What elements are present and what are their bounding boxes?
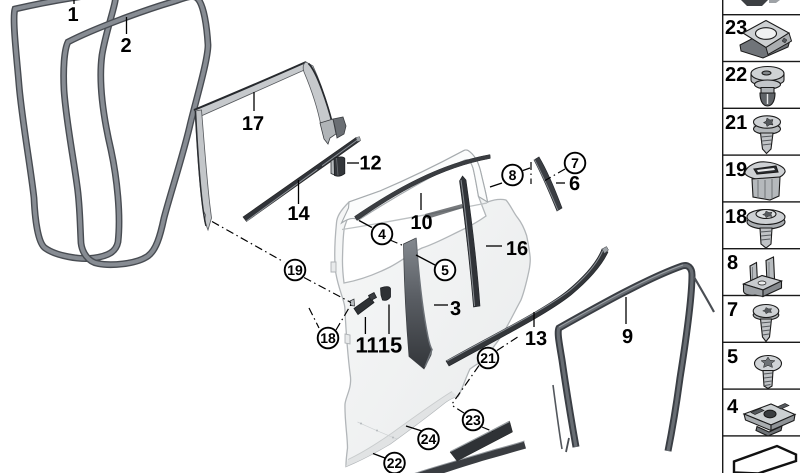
- svg-text:4: 4: [727, 396, 739, 418]
- svg-text:17: 17: [242, 113, 264, 135]
- svg-text:19: 19: [725, 159, 747, 181]
- svg-text:6: 6: [569, 173, 580, 195]
- svg-text:8: 8: [727, 252, 738, 274]
- svg-text:19: 19: [287, 262, 303, 278]
- svg-text:8: 8: [509, 167, 517, 183]
- svg-text:15: 15: [378, 333, 402, 358]
- svg-text:23: 23: [465, 412, 481, 428]
- svg-text:5: 5: [727, 346, 738, 368]
- svg-text:7: 7: [727, 299, 738, 321]
- svg-text:3: 3: [450, 298, 461, 320]
- svg-text:10: 10: [410, 212, 432, 234]
- svg-text:4: 4: [378, 226, 386, 242]
- svg-text:18: 18: [725, 206, 747, 228]
- svg-text:16: 16: [506, 238, 528, 260]
- svg-text:18: 18: [320, 330, 336, 346]
- svg-text:5: 5: [441, 262, 449, 278]
- svg-text:13: 13: [525, 328, 547, 350]
- svg-text:1: 1: [67, 4, 78, 26]
- svg-text:21: 21: [480, 350, 496, 366]
- svg-text:12: 12: [359, 153, 381, 175]
- svg-text:9: 9: [622, 326, 633, 348]
- svg-text:23: 23: [725, 17, 747, 39]
- svg-text:21: 21: [725, 112, 747, 134]
- svg-text:11: 11: [355, 333, 378, 358]
- svg-text:22: 22: [387, 455, 403, 471]
- svg-text:2: 2: [120, 35, 131, 57]
- svg-text:14: 14: [287, 203, 310, 225]
- svg-text:22: 22: [725, 64, 747, 86]
- svg-text:24: 24: [421, 431, 437, 447]
- svg-text:7: 7: [571, 155, 579, 171]
